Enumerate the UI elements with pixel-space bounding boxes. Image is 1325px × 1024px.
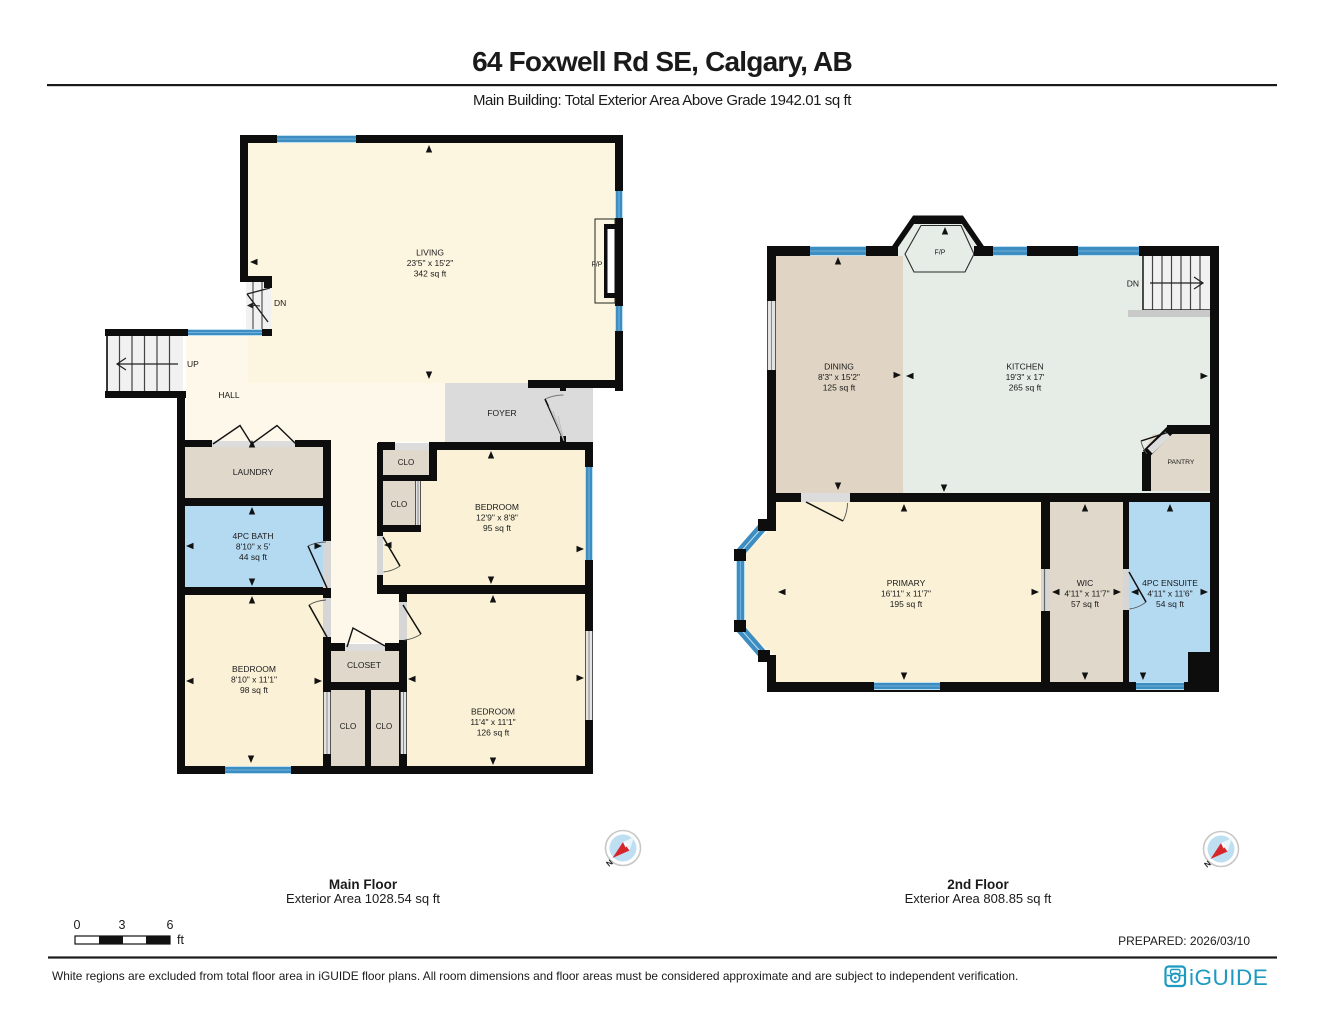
svg-text:95 sq ft: 95 sq ft (483, 523, 512, 533)
svg-text:KITCHEN: KITCHEN (1006, 362, 1043, 372)
svg-text:98 sq ft: 98 sq ft (240, 685, 269, 695)
svg-text:4'11" x 11'7": 4'11" x 11'7" (1064, 589, 1109, 599)
svg-text:UP: UP (187, 359, 199, 369)
svg-text:PREPARED: 2026/03/10: PREPARED: 2026/03/10 (1118, 934, 1250, 948)
svg-text:White regions are excluded fro: White regions are excluded from total fl… (52, 969, 1018, 983)
svg-text:4'11" x 11'6": 4'11" x 11'6" (1147, 589, 1192, 599)
svg-text:125 sq ft: 125 sq ft (823, 383, 856, 393)
svg-text:ft: ft (177, 933, 184, 947)
svg-text:44 sq ft: 44 sq ft (239, 552, 268, 562)
svg-text:6: 6 (167, 918, 174, 932)
svg-text:342 sq ft: 342 sq ft (414, 269, 447, 279)
svg-text:Main Floor: Main Floor (329, 877, 398, 892)
svg-text:FOYER: FOYER (487, 408, 516, 418)
svg-text:CLO: CLO (398, 458, 414, 467)
svg-text:BEDROOM: BEDROOM (475, 502, 519, 512)
svg-text:DN: DN (1127, 279, 1139, 289)
svg-text:Main Building: Total Exterior: Main Building: Total Exterior Area Above… (473, 92, 852, 109)
svg-text:LIVING: LIVING (416, 248, 444, 258)
svg-text:3: 3 (119, 918, 126, 932)
svg-text:195 sq ft: 195 sq ft (890, 599, 923, 609)
svg-text:11'4" x 11'1": 11'4" x 11'1" (470, 717, 515, 727)
svg-text:HALL: HALL (218, 390, 240, 400)
svg-text:F/P: F/P (935, 250, 946, 257)
svg-text:8'3" x 15'2": 8'3" x 15'2" (818, 372, 860, 382)
svg-text:2nd Floor: 2nd Floor (947, 877, 1009, 892)
svg-text:DINING: DINING (824, 362, 854, 372)
svg-text:WIC: WIC (1077, 578, 1094, 588)
svg-text:LAUNDRY: LAUNDRY (233, 467, 274, 477)
svg-text:126 sq ft: 126 sq ft (477, 728, 510, 738)
svg-text:54 sq ft: 54 sq ft (1156, 599, 1185, 609)
svg-text:F/P: F/P (592, 262, 603, 269)
svg-text:0: 0 (74, 918, 81, 932)
svg-text:PRIMARY: PRIMARY (887, 578, 926, 588)
svg-text:4PC ENSUITE: 4PC ENSUITE (1142, 578, 1198, 588)
svg-text:8'10" x 5': 8'10" x 5' (236, 542, 271, 552)
svg-text:64 Foxwell Rd SE, Calgary, AB: 64 Foxwell Rd SE, Calgary, AB (472, 46, 852, 77)
svg-text:23'5" x 15'2": 23'5" x 15'2" (407, 258, 454, 268)
svg-text:Exterior Area 808.85 sq ft: Exterior Area 808.85 sq ft (905, 891, 1052, 906)
svg-text:4PC BATH: 4PC BATH (233, 531, 274, 541)
svg-text:8'10" x 11'1": 8'10" x 11'1" (231, 675, 277, 685)
svg-text:CLO: CLO (376, 722, 392, 731)
svg-text:DN: DN (274, 298, 286, 308)
svg-text:265 sq ft: 265 sq ft (1009, 383, 1042, 393)
svg-text:57 sq ft: 57 sq ft (1071, 599, 1100, 609)
svg-text:iGUIDE: iGUIDE (1189, 965, 1268, 990)
svg-text:CLO: CLO (340, 722, 356, 731)
svg-text:PANTRY: PANTRY (1168, 459, 1195, 466)
svg-text:BEDROOM: BEDROOM (471, 707, 515, 717)
svg-text:16'11" x 11'7": 16'11" x 11'7" (881, 589, 931, 599)
svg-text:19'3" x 17': 19'3" x 17' (1006, 372, 1045, 382)
svg-text:Exterior Area 1028.54 sq ft: Exterior Area 1028.54 sq ft (286, 891, 440, 906)
svg-text:BEDROOM: BEDROOM (232, 664, 276, 674)
svg-text:CLOSET: CLOSET (347, 660, 381, 670)
svg-text:12'9" x 8'8": 12'9" x 8'8" (476, 513, 518, 523)
svg-text:CLO: CLO (391, 500, 407, 509)
